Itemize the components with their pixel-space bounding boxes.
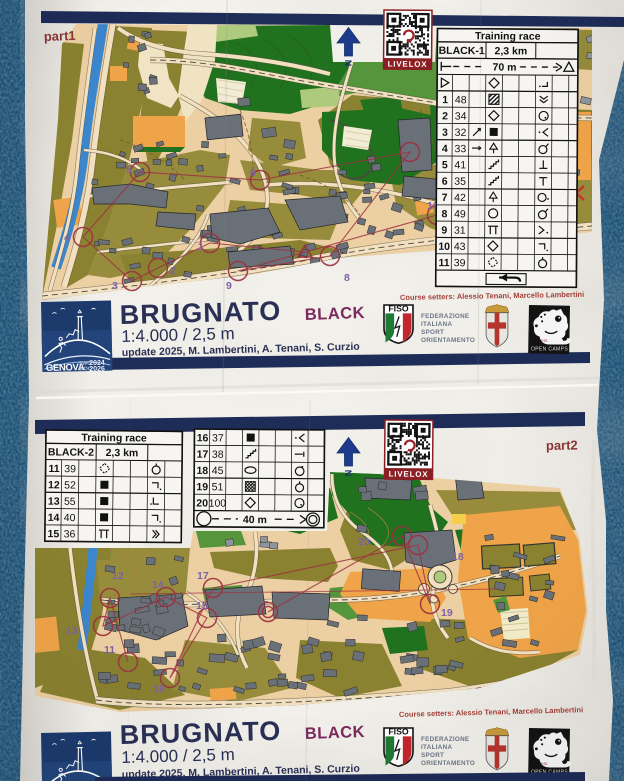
svg-text:13: 13 (48, 496, 60, 508)
svg-text:BLACK: BLACK (305, 723, 366, 743)
svg-text:ORIENTAMENTO: ORIENTAMENTO (421, 337, 475, 344)
svg-text:est.: est. (541, 761, 548, 766)
svg-text:14: 14 (152, 579, 164, 591)
svg-text:42: 42 (454, 192, 466, 204)
svg-text:ITALIANA: ITALIANA (421, 744, 452, 751)
svg-text:8: 8 (441, 208, 447, 220)
svg-text:5: 5 (126, 164, 132, 176)
svg-text:3: 3 (442, 127, 448, 139)
svg-text:LIVELOX: LIVELOX (388, 60, 428, 69)
svg-text:BRUGNATO: BRUGNATO (119, 716, 281, 750)
svg-text:11: 11 (104, 644, 115, 656)
svg-text:18: 18 (196, 465, 208, 477)
svg-text:32: 32 (455, 127, 467, 139)
svg-text:2: 2 (170, 265, 176, 277)
svg-text:Training race: Training race (475, 30, 541, 42)
svg-text:34: 34 (455, 110, 467, 122)
svg-text:6: 6 (442, 176, 448, 188)
svg-text:SPORT: SPORT (421, 752, 444, 759)
svg-text:36: 36 (64, 528, 76, 540)
svg-text:BLACK: BLACK (305, 304, 366, 324)
svg-text:ITALIANA: ITALIANA (421, 321, 452, 328)
svg-text:16: 16 (197, 432, 209, 444)
svg-text:SPORT: SPORT (421, 329, 444, 336)
svg-text:55: 55 (64, 496, 76, 508)
svg-text:FEDERAZIONE: FEDERAZIONE (421, 736, 469, 743)
svg-text:52: 52 (64, 479, 76, 491)
svg-text:9: 9 (441, 224, 447, 236)
svg-text:12: 12 (48, 479, 60, 491)
svg-text:19: 19 (441, 607, 453, 619)
svg-text:35: 35 (454, 176, 466, 188)
svg-text:Training race: Training race (81, 432, 147, 445)
svg-text:11: 11 (438, 257, 449, 269)
svg-text:part2: part2 (546, 437, 578, 453)
svg-text:N: N (343, 470, 353, 477)
svg-text:33: 33 (455, 143, 467, 155)
svg-text:1:4.000 / 2,5 m: 1:4.000 / 2,5 m (121, 324, 235, 346)
svg-text:est.: est. (541, 338, 548, 343)
svg-text:38: 38 (212, 449, 224, 461)
svg-text:41: 41 (454, 159, 466, 171)
svg-text:2,3 km: 2,3 km (106, 447, 139, 459)
svg-text:BLACK-2: BLACK-2 (48, 446, 94, 458)
svg-text:1: 1 (198, 241, 204, 253)
svg-text:FISO: FISO (388, 727, 409, 737)
svg-text:8: 8 (344, 272, 350, 284)
svg-text:39: 39 (64, 463, 76, 475)
svg-text:1:4.000 / 2,5 m: 1:4.000 / 2,5 m (121, 745, 235, 767)
svg-text:6: 6 (250, 167, 256, 179)
svg-text:31: 31 (454, 225, 466, 237)
svg-text:OPEN CAMPS: OPEN CAMPS (531, 346, 568, 352)
svg-text:ORIENTAMENTO: ORIENTAMENTO (421, 760, 475, 767)
svg-text:4: 4 (64, 232, 70, 244)
svg-text:5: 5 (442, 159, 448, 171)
svg-text:20: 20 (196, 498, 208, 510)
svg-text:15: 15 (48, 528, 60, 540)
svg-text:4: 4 (442, 143, 448, 155)
svg-text:100: 100 (209, 498, 227, 510)
svg-text:1: 1 (442, 94, 448, 106)
svg-text:13: 13 (66, 625, 78, 637)
svg-text:48: 48 (455, 94, 467, 106)
svg-text:N: N (343, 60, 353, 67)
svg-text:LIVELOX: LIVELOX (389, 470, 429, 479)
svg-text:17: 17 (197, 449, 209, 461)
svg-text:37: 37 (212, 432, 224, 444)
svg-text:12: 12 (112, 570, 124, 582)
svg-text:2: 2 (442, 110, 448, 122)
svg-text:2026: 2026 (89, 366, 105, 373)
svg-text:7: 7 (442, 192, 448, 204)
svg-text:FEDERAZIONE: FEDERAZIONE (421, 313, 469, 320)
svg-text:70 m: 70 m (493, 62, 517, 74)
svg-text:14: 14 (48, 512, 60, 524)
svg-text:19: 19 (196, 481, 208, 493)
svg-text:51: 51 (212, 481, 224, 493)
svg-text:20: 20 (358, 536, 370, 548)
svg-text:BLACK-1: BLACK-1 (439, 45, 485, 57)
svg-text:3: 3 (112, 280, 118, 292)
svg-text:39: 39 (454, 257, 466, 269)
svg-text:49: 49 (454, 208, 466, 220)
svg-text:9: 9 (226, 280, 232, 292)
svg-text:11: 11 (48, 463, 59, 475)
svg-text:2,3 km: 2,3 km (494, 45, 527, 57)
svg-text:40: 40 (64, 512, 76, 524)
svg-text:45: 45 (212, 465, 224, 477)
svg-text:17: 17 (197, 570, 209, 582)
svg-text:18: 18 (452, 551, 464, 563)
svg-text:part1: part1 (44, 28, 76, 44)
svg-text:40 m: 40 m (243, 514, 267, 526)
svg-text:43: 43 (454, 241, 466, 253)
svg-text:10: 10 (438, 241, 450, 253)
svg-text:16: 16 (153, 683, 165, 695)
svg-text:15: 15 (196, 600, 208, 612)
svg-text:FISO: FISO (388, 304, 409, 314)
